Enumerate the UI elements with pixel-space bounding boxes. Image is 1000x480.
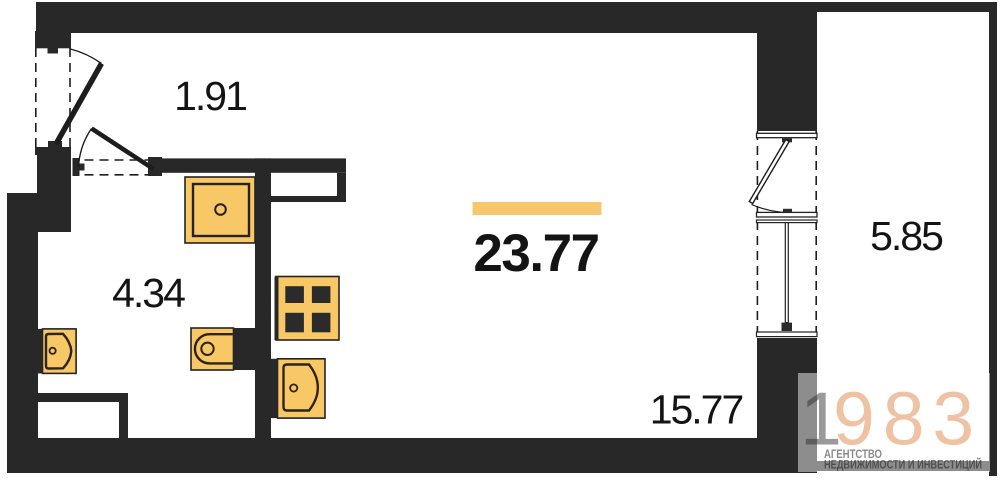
svg-text:23.77: 23.77 xyxy=(473,224,598,283)
svg-text:15.77: 15.77 xyxy=(650,387,743,433)
svg-text:983: 983 xyxy=(833,377,982,461)
svg-text:4.34: 4.34 xyxy=(112,270,185,316)
svg-text:1.91: 1.91 xyxy=(174,73,246,119)
svg-text:НЕДВИЖИМОСТИ И ИНВЕСТИЦИЙ: НЕДВИЖИМОСТИ И ИНВЕСТИЦИЙ xyxy=(824,457,982,472)
svg-text:5.85: 5.85 xyxy=(870,213,943,259)
